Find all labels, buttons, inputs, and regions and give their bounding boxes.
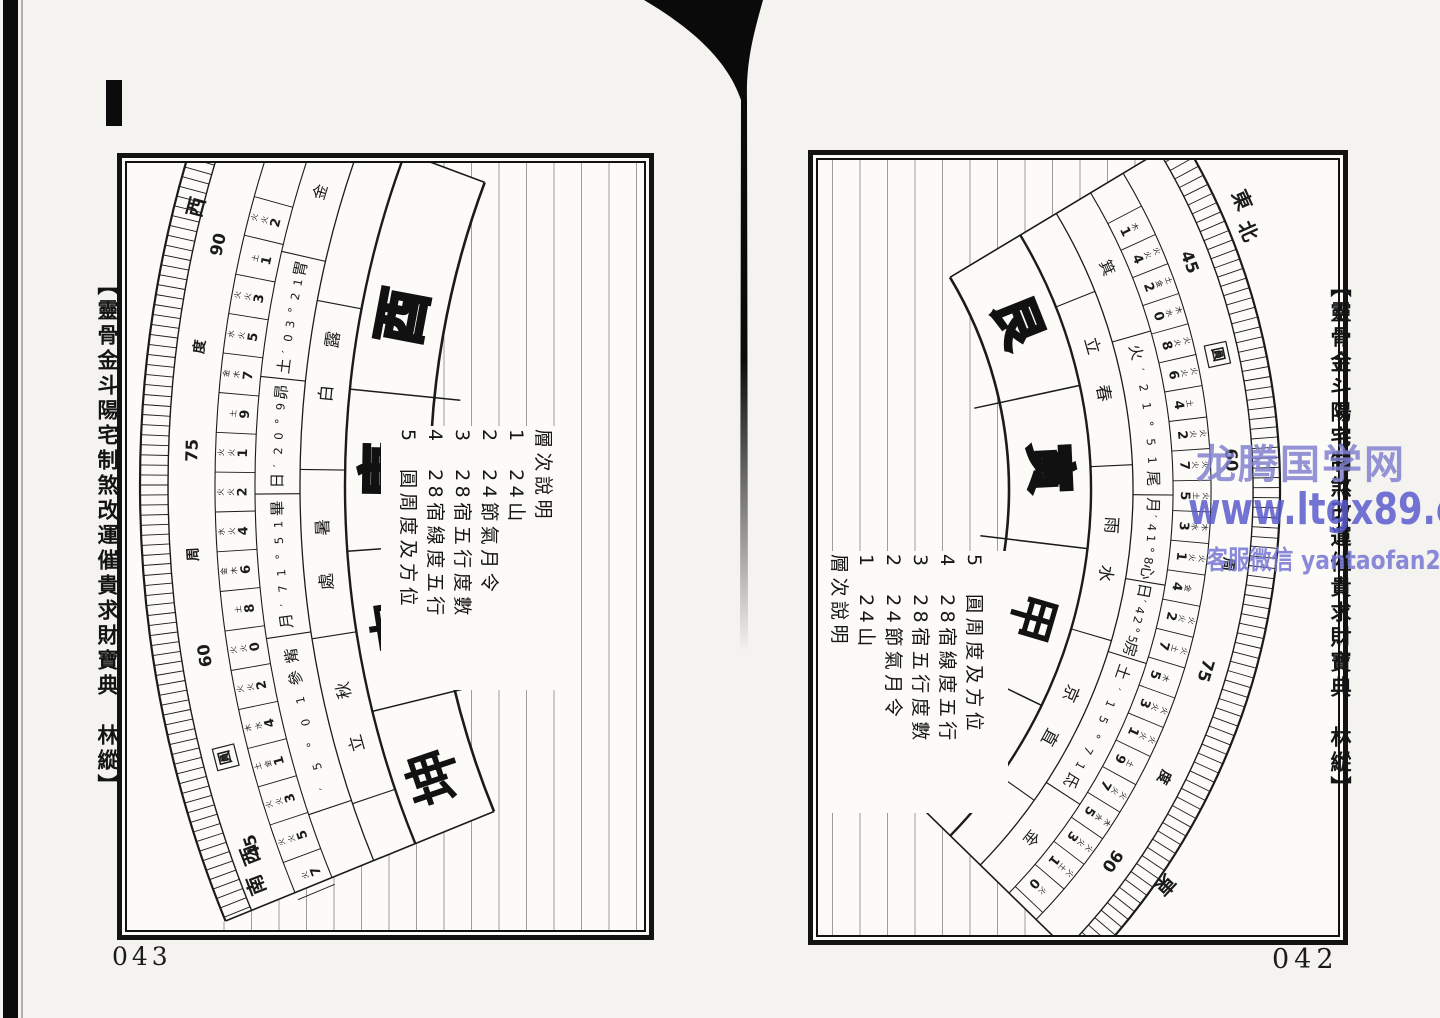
- page-number-right: 042: [1272, 944, 1339, 975]
- svg-text:火: 火: [1197, 554, 1207, 563]
- svg-text:8: 8: [242, 603, 258, 614]
- svg-text:尾: 尾: [1144, 471, 1162, 487]
- svg-text:昴: 昴: [272, 383, 291, 400]
- svg-text:2: 2: [271, 447, 285, 455]
- svg-text:1: 1: [1145, 456, 1159, 464]
- legend-items: 1 24山2 24節氣月令3 28宿五行度數4 28宿線度五行5 圓周度及方位: [394, 429, 529, 687]
- svg-text:1: 1: [274, 569, 289, 578]
- svg-text:5: 5: [272, 537, 286, 545]
- svg-text:2: 2: [1174, 430, 1190, 440]
- layer-legend: 層次說明 1 24山2 24節氣月令3 28宿五行度數4 28宿線度五行5 圓周…: [381, 426, 559, 690]
- svg-text:9: 9: [273, 403, 288, 411]
- scanned-book-spread: 2火火1土3火火5火水7木金9土1火火2火火4火水6木金8土0火火2火火4水木1…: [0, 0, 1440, 1018]
- svg-text:雨: 雨: [1100, 516, 1121, 534]
- svg-text:1: 1: [1144, 534, 1159, 543]
- svg-text:5: 5: [1144, 438, 1159, 446]
- svg-text:2: 2: [235, 487, 250, 496]
- svg-text:3: 3: [1176, 521, 1192, 531]
- svg-text:月: 月: [1144, 497, 1162, 513]
- page-left: 2火火1土3火火5火水7木金9土1火火2火火4火水6木金8土0火火2火火4水木1…: [117, 153, 654, 940]
- legend-title: 層次說明: [825, 554, 852, 810]
- svg-text:日: 日: [268, 473, 286, 489]
- svg-text:木: 木: [229, 566, 240, 575]
- svg-text:火: 火: [227, 527, 236, 535]
- svg-text:60: 60: [194, 643, 216, 669]
- svg-text:火: 火: [216, 488, 225, 496]
- legend-item: 3 28宿五行度數: [448, 429, 475, 687]
- svg-text:暑: 暑: [313, 518, 334, 536]
- svg-text:1: 1: [271, 521, 285, 529]
- svg-text:水: 水: [216, 527, 226, 535]
- svg-text:1: 1: [236, 448, 251, 457]
- luopan-arc-diagram-east: 1木4火火2金土0水木8火火6火火4土2火火7火火5土火3水木1火火4金2火火7…: [818, 160, 1338, 935]
- page-right-inner: 1木4火火2金土0水木8火火6火火4土2火火7火火5土火3水木1火火4金2火火7…: [816, 158, 1340, 937]
- svg-text:酉: 酉: [366, 283, 440, 350]
- svg-text:7: 7: [1176, 461, 1191, 471]
- svg-text:土: 土: [275, 357, 295, 375]
- page-right: 1木4火火2金土0水木8火火6火火4土2火火7火火5土火3水木1火火4金2火火7…: [808, 150, 1348, 945]
- svg-text:7: 7: [241, 370, 257, 381]
- legend-item: 2 24節氣月令: [879, 554, 906, 810]
- legend-item: 4 28宿線度五行: [421, 429, 448, 687]
- legend-title: 層次說明: [529, 429, 556, 687]
- book-title-vertical-right: 【靈骨金斗陽宅制煞改運催貴求財寶典 林縱】: [1325, 276, 1355, 876]
- svg-text:處: 處: [317, 572, 339, 591]
- svg-text:木: 木: [1200, 523, 1210, 532]
- svg-text:周: 周: [185, 547, 202, 562]
- legend-items: 1 24山2 24節氣月令3 28宿五行度數4 28宿線度五行5 圓周度及方位: [852, 554, 987, 810]
- legend-item: 2 24節氣月令: [475, 429, 502, 687]
- svg-text:土: 土: [1191, 492, 1201, 500]
- svg-text:周: 周: [1219, 556, 1237, 572]
- svg-text:°: °: [273, 553, 287, 560]
- svg-text:土: 土: [228, 409, 239, 418]
- legend-item: 5 圓周度及方位: [960, 554, 987, 810]
- svg-text:75: 75: [182, 439, 202, 463]
- svg-text:日: 日: [1134, 582, 1155, 601]
- svg-text:60: 60: [1221, 448, 1241, 472]
- legend-item: 5 圓周度及方位: [394, 429, 421, 687]
- svg-text:火: 火: [1191, 461, 1200, 469]
- svg-text:觜: 觜: [282, 646, 302, 664]
- svg-text:露: 露: [322, 330, 344, 350]
- svg-text:寅: 寅: [1019, 442, 1079, 495]
- svg-text:水: 水: [1094, 563, 1116, 583]
- svg-text:火: 火: [1200, 461, 1209, 469]
- svg-text:4: 4: [236, 526, 251, 536]
- svg-text:心: 心: [1137, 563, 1157, 581]
- svg-text:6: 6: [239, 564, 255, 574]
- scan-corner-mark: [106, 80, 122, 126]
- legend-item: 3 28宿五行度數: [906, 554, 933, 810]
- svg-text:0: 0: [272, 432, 286, 440]
- svg-text:畢: 畢: [269, 500, 287, 516]
- svg-text:月: 月: [277, 612, 297, 630]
- book-title-vertical-left: 【靈骨金斗陽宅制煞改運催貴求財寶典 林縱】: [92, 274, 122, 874]
- svg-text:1: 1: [1173, 551, 1189, 562]
- page-left-inner: 2火火1土3火火5火水7木金9土1火火2火火4火水6木金8土0火火2火火4水木1…: [125, 161, 646, 932]
- legend-item: 1 24山: [852, 554, 879, 810]
- svg-text:水: 水: [1190, 523, 1200, 532]
- layer-legend: 層次說明 1 24山2 24節氣月令3 28宿五行度數4 28宿線度五行5 圓周…: [822, 551, 1008, 813]
- svg-text:火: 火: [1198, 429, 1208, 438]
- svg-text:火: 火: [226, 488, 235, 496]
- legend-item: 1 24山: [502, 429, 529, 687]
- svg-text:9: 9: [238, 409, 254, 419]
- svg-text:7: 7: [275, 584, 290, 593]
- svg-text:°: °: [272, 418, 286, 425]
- svg-text:火: 火: [1201, 492, 1210, 500]
- svg-text:4: 4: [1144, 523, 1158, 531]
- svg-text:火: 火: [227, 448, 236, 456]
- svg-text:火: 火: [1188, 430, 1198, 439]
- svg-text:金: 金: [218, 567, 229, 576]
- svg-text:5: 5: [1177, 491, 1192, 500]
- svg-text:白: 白: [316, 384, 338, 403]
- compass-arc: 1木4火火2金土0水木8火火6火火4土2火火7火火5土火3水木1火火4金2火火7…: [818, 160, 1338, 935]
- page-number-left: 043: [112, 942, 172, 971]
- svg-text:火: 火: [216, 448, 225, 456]
- legend-item: 4 28宿線度五行: [933, 554, 960, 810]
- book-edge-shadow: [3, 0, 18, 1018]
